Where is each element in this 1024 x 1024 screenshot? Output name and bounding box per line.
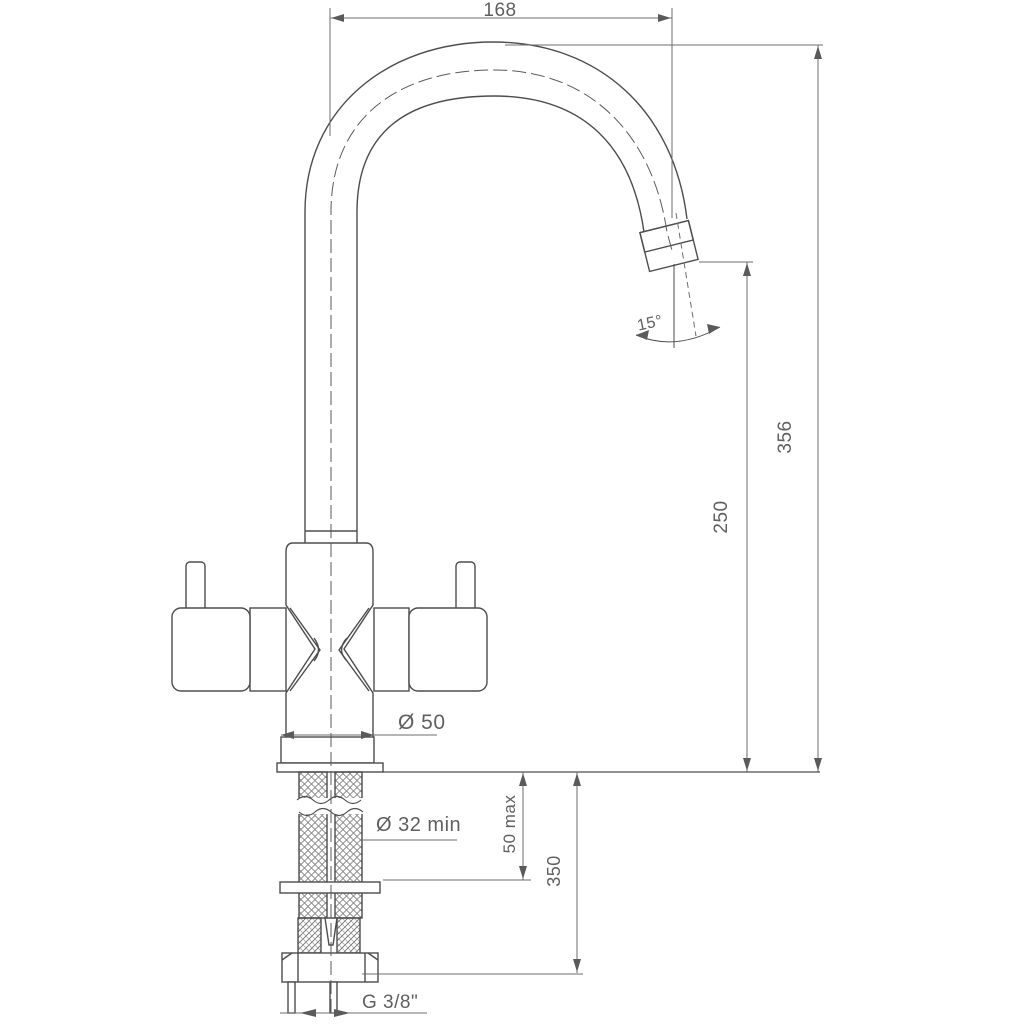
spout-inner-edge (357, 96, 644, 545)
label-spout-height: 250 (711, 500, 732, 533)
arrow-angle-arc-right (707, 324, 720, 334)
arrow-168-right (658, 14, 671, 22)
label-thread-size: G 3/8" (362, 992, 418, 1013)
arrow-250-bottom (743, 758, 751, 771)
base-plate (277, 763, 383, 772)
label-total-height: 356 (775, 420, 796, 453)
label-hose-length: 350 (544, 855, 564, 887)
left-handle-body (172, 608, 250, 691)
arrow-356-bottom (814, 758, 822, 771)
mounting-washer (280, 882, 380, 893)
faucet-body-column (286, 543, 373, 738)
label-spout-reach: 168 (483, 0, 516, 21)
arrow-250-top (743, 263, 751, 276)
shank-knurl-right (335, 772, 362, 918)
arrow-356-top (814, 46, 822, 59)
label-deck-thickness: 50 max (500, 795, 519, 854)
spout-outer-edge (305, 42, 687, 545)
arrow-50max-bottom (519, 866, 527, 879)
label-spout-angle: 15° (636, 313, 665, 335)
shank-knurl-left (299, 772, 327, 918)
base-flange (281, 737, 374, 763)
arrow-350-top (573, 773, 581, 786)
arrow-thread-right (334, 1009, 350, 1017)
faucet-technical-drawing: 168 356 250 15° Ø 50 Ø 32 min 50 max 350… (0, 0, 1024, 1024)
left-handle-neck (250, 608, 286, 691)
right-handle-neck (374, 608, 409, 691)
thread-block-left (298, 918, 321, 953)
label-hole-diameter: Ø 32 min (376, 814, 461, 836)
hex-nut (282, 953, 378, 982)
arrow-350-bottom (573, 959, 581, 972)
right-handle-body (409, 608, 487, 691)
arrow-168-left (331, 14, 344, 22)
drawing-svg: 168 356 250 15° Ø 50 Ø 32 min 50 max 350… (0, 0, 1024, 1024)
thread-block-right (337, 918, 360, 953)
faucet-outline (172, 42, 698, 1013)
label-base-diameter: Ø 50 (398, 711, 446, 734)
spout-aerator (640, 221, 698, 272)
arrow-50max-top (519, 773, 527, 786)
hose-stub-left (288, 982, 295, 1013)
arrow-thread-left (300, 1009, 316, 1017)
right-handle-lever (456, 562, 475, 612)
left-handle-lever (186, 562, 205, 612)
center-axis-line (331, 70, 673, 1013)
